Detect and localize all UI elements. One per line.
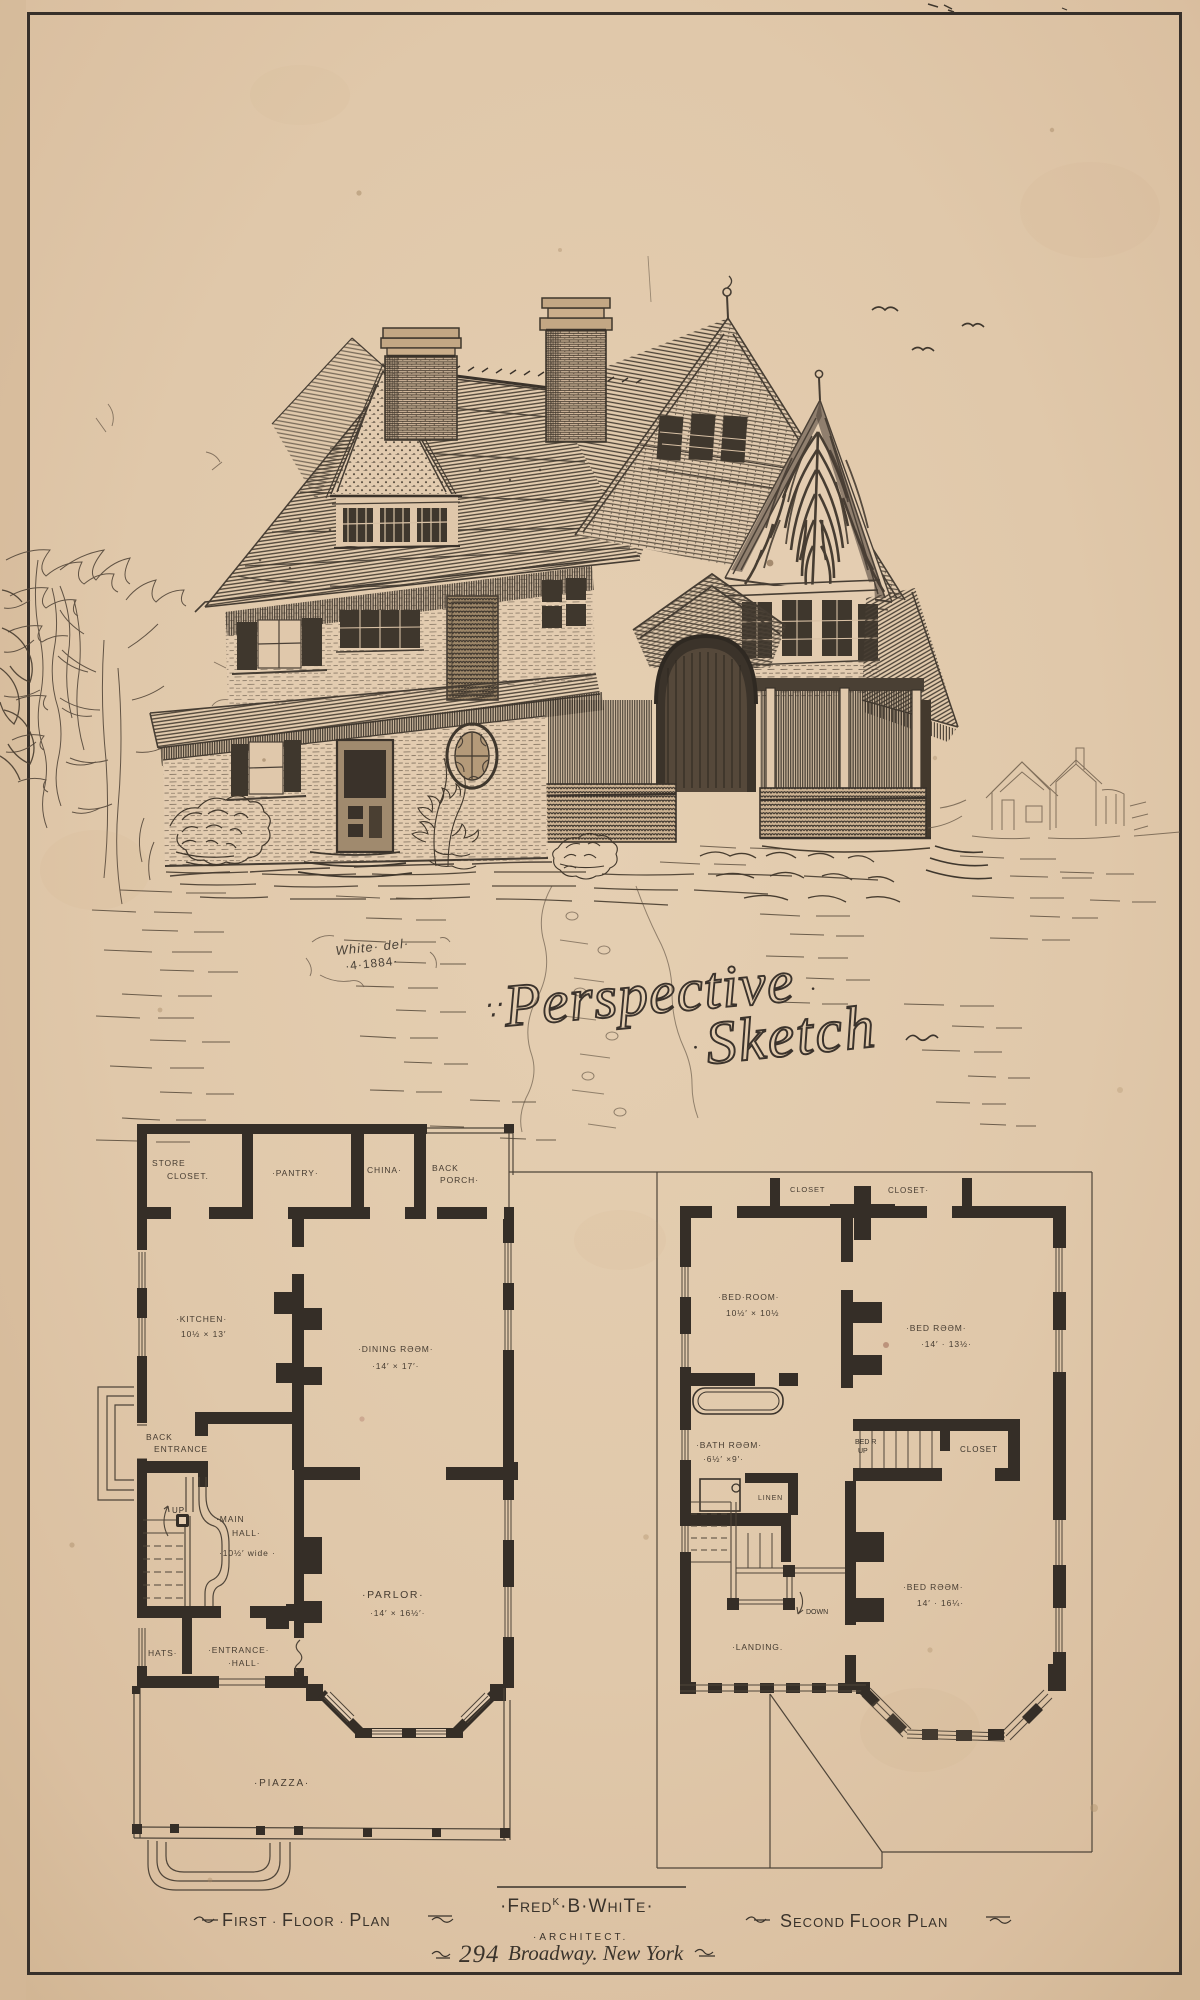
svg-text:CLOSET.: CLOSET. — [167, 1171, 209, 1181]
svg-text:10½′ × 10½: 10½′ × 10½ — [726, 1308, 779, 1318]
svg-text:UP: UP — [858, 1448, 868, 1455]
svg-text:ENTRANCE: ENTRANCE — [154, 1444, 208, 1454]
svg-text:·PARLOR·: ·PARLOR· — [362, 1589, 424, 1601]
svg-text:·ENTRANCE·: ·ENTRANCE· — [208, 1645, 269, 1655]
svg-text:LINEN: LINEN — [758, 1495, 783, 1502]
svg-text:·LANDING.: ·LANDING. — [732, 1642, 783, 1652]
svg-text:·10½′ wide ·: ·10½′ wide · — [219, 1548, 276, 1558]
svg-text:HALL·: HALL· — [232, 1528, 261, 1538]
svg-text:·BED·ROOM·: ·BED·ROOM· — [718, 1292, 779, 1302]
svg-text:·BED RƏƏM·: ·BED RƏƏM· — [906, 1323, 967, 1333]
svg-text:·HALL·: ·HALL· — [228, 1658, 260, 1668]
svg-text:·PIAZZA·: ·PIAZZA· — [254, 1778, 310, 1789]
svg-text:·FREDK·B·WHITE·: ·FREDK·B·WHITE· — [500, 1896, 654, 1917]
svg-text:·BATH RƏƏM·: ·BATH RƏƏM· — [696, 1440, 762, 1450]
svg-text:294: 294 — [459, 1941, 500, 1968]
svg-text:·KITCHEN·: ·KITCHEN· — [176, 1314, 227, 1324]
svg-text:·6½′ ×9′·: ·6½′ ×9′· — [703, 1454, 744, 1464]
svg-text:STORE: STORE — [152, 1158, 186, 1168]
svg-text:·: · — [810, 976, 816, 1001]
svg-text:BACK: BACK — [146, 1432, 173, 1442]
svg-text:UP: UP — [172, 1506, 185, 1515]
svg-text:·DINING RƏƏM·: ·DINING RƏƏM· — [358, 1344, 433, 1354]
svg-text:DOWN: DOWN — [806, 1609, 828, 1616]
svg-text:CLOSET: CLOSET — [960, 1445, 998, 1454]
svg-text:Broadway. New York: Broadway. New York — [508, 1941, 684, 1965]
svg-text:BED R: BED R — [855, 1439, 876, 1446]
svg-text:·BED RƏƏM·: ·BED RƏƏM· — [903, 1582, 964, 1592]
svg-text:HATS·: HATS· — [148, 1648, 177, 1658]
svg-text:CLOSET: CLOSET — [790, 1185, 825, 1194]
svg-text:·PANTRY·: ·PANTRY· — [272, 1168, 319, 1178]
svg-text:·14′ × 16½′·: ·14′ × 16½′· — [370, 1608, 425, 1618]
svg-text:CLOSET·: CLOSET· — [888, 1186, 929, 1195]
svg-text:·14′ · 13½·: ·14′ · 13½· — [921, 1339, 972, 1349]
svg-text:14′ · 16¼·: 14′ · 16¼· — [917, 1598, 964, 1608]
svg-text:10½ × 13′: 10½ × 13′ — [181, 1329, 226, 1339]
svg-text:PORCH·: PORCH· — [440, 1175, 479, 1185]
svg-text:BACK: BACK — [432, 1163, 459, 1173]
svg-text:·MAIN: ·MAIN — [216, 1514, 245, 1524]
svg-text:·14′ × 17′·: ·14′ × 17′· — [372, 1361, 419, 1371]
svg-text:CHINA·: CHINA· — [367, 1165, 402, 1175]
